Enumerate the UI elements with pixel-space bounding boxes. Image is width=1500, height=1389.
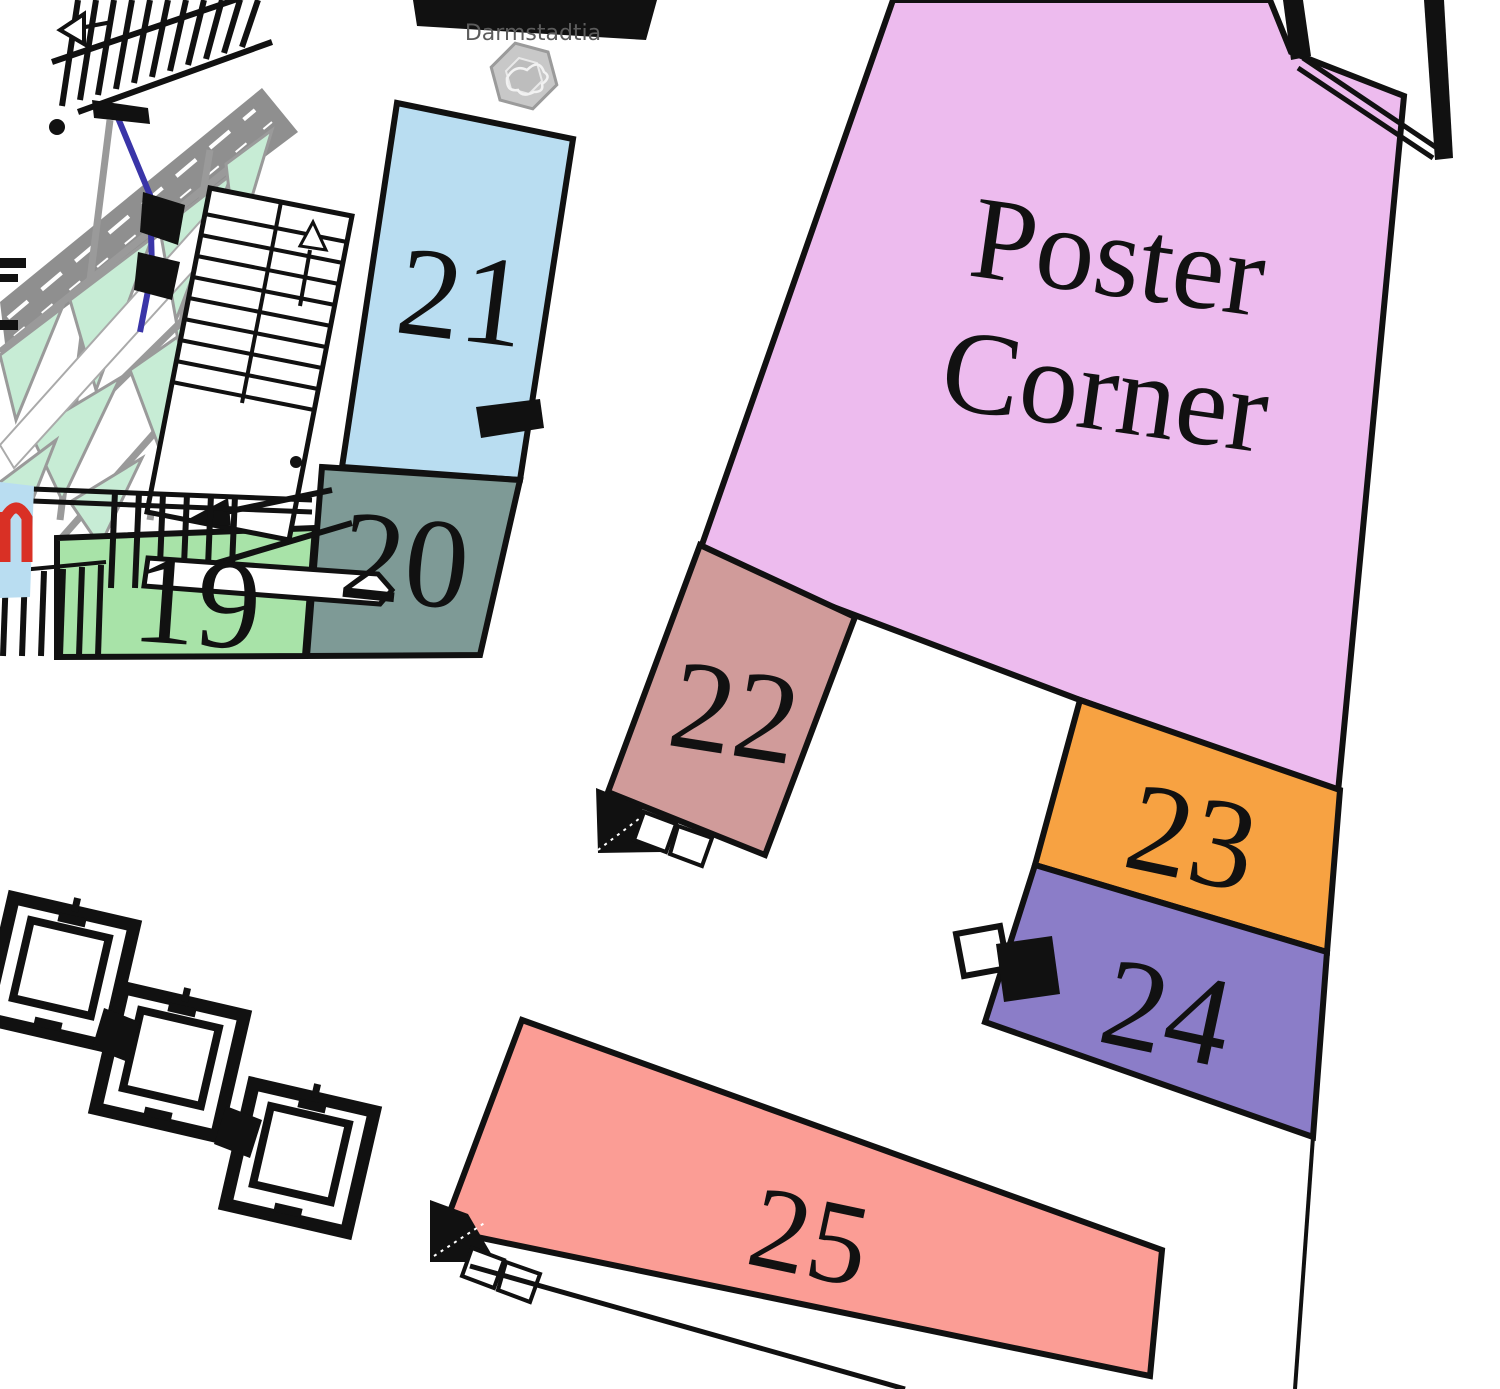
booth-20-label: 20 [334, 483, 476, 638]
stairs-top-arrow [60, 14, 112, 44]
floor-plan-map: Darmstadtia Poster Corner 19 20 21 22 23… [0, 0, 1500, 1389]
booth-19-label: 19 [128, 527, 266, 678]
stairs-top-left [52, 0, 272, 112]
venue-label: Darmstadtia [465, 21, 601, 46]
edge-booth-fragment [0, 482, 34, 598]
booth-21-label: 21 [390, 219, 534, 376]
wall-line-right [1295, 1137, 1313, 1389]
booth-22-label: 22 [661, 632, 810, 792]
floor-plan-viewport: Darmstadtia Poster Corner 19 20 21 22 23… [0, 0, 1500, 1389]
booth-24-handle-block [996, 936, 1060, 1002]
elevator-bank [0, 884, 378, 1232]
stairwell-dot [290, 456, 302, 468]
darmstadtia-logo [491, 43, 557, 109]
door-post-right [1424, 0, 1453, 160]
poster-corner-label: Poster Corner [934, 171, 1277, 478]
